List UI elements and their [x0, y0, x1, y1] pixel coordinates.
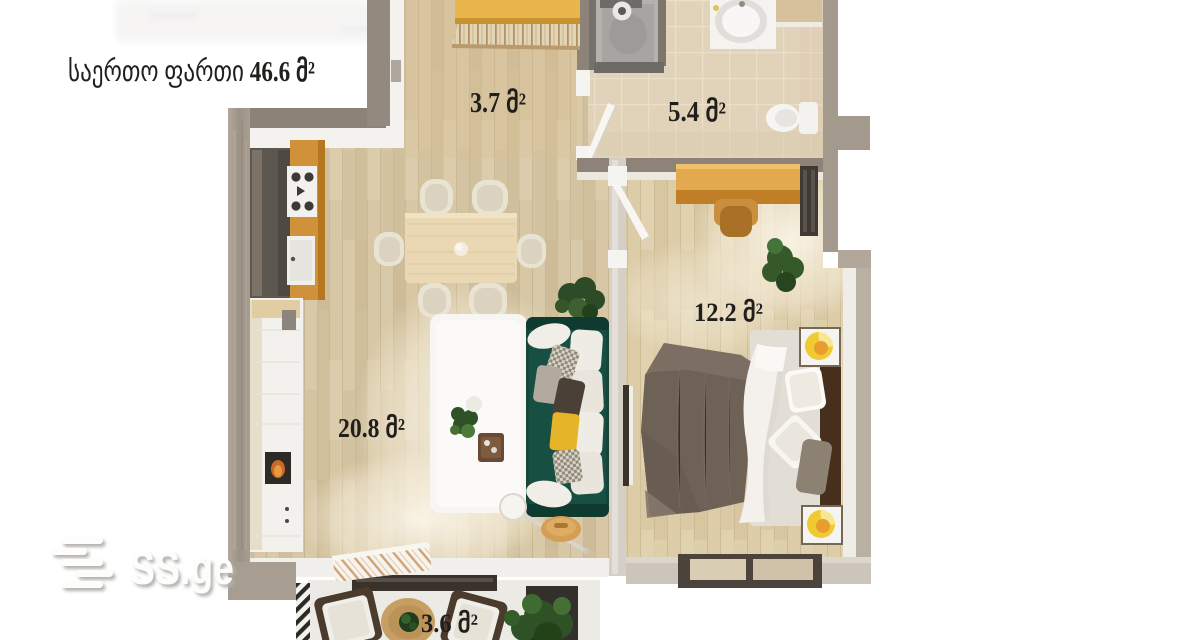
svg-text:საერთო ფართი 46.6 მ²: საერთო ფართი 46.6 მ² — [68, 56, 315, 88]
svg-text:3.7 მ²: 3.7 მ² — [470, 88, 526, 119]
svg-text:12.2 მ²: 12.2 მ² — [694, 298, 763, 327]
svg-text:3.6 მ²: 3.6 მ² — [421, 609, 478, 638]
svg-text:SS.ge: SS.ge — [130, 542, 234, 594]
svg-text:20.8 მ²: 20.8 მ² — [338, 413, 405, 443]
svg-text:5.4 მ²: 5.4 მ² — [668, 97, 726, 128]
